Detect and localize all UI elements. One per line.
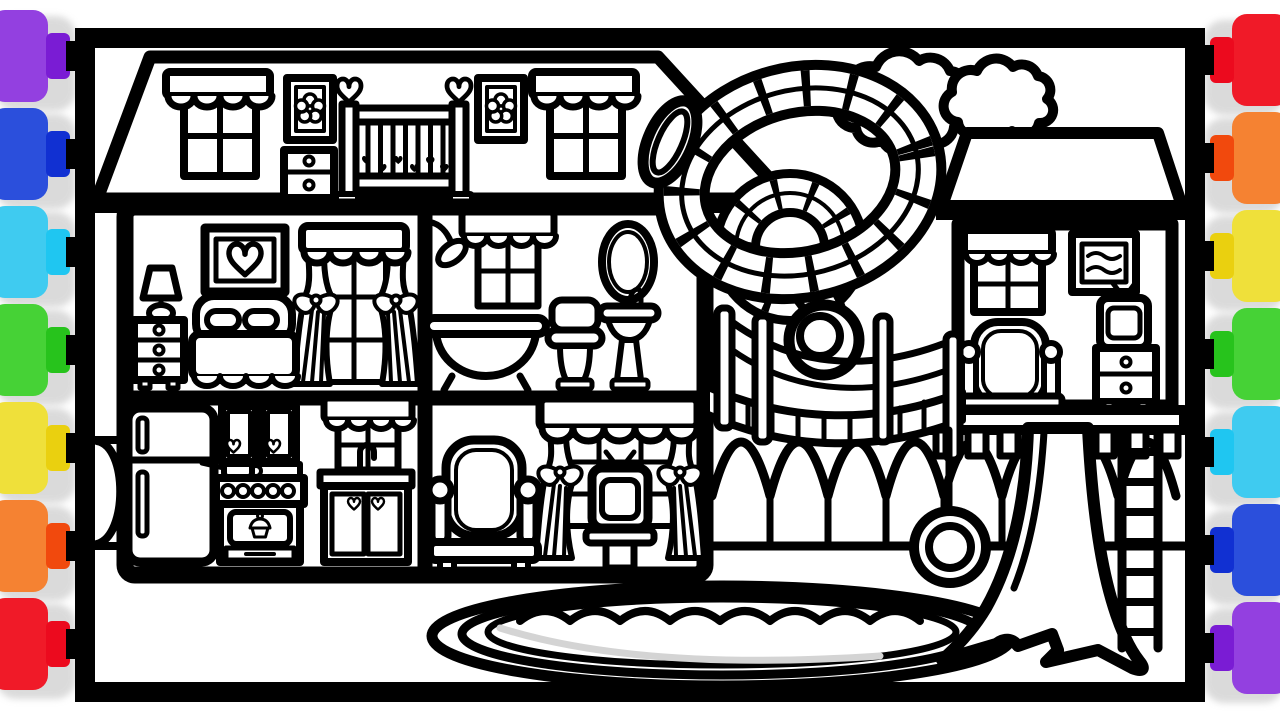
pedestal-foot [612, 380, 648, 389]
treehouse-window [964, 230, 1054, 312]
awning [324, 398, 412, 420]
flower-picture-frame [478, 78, 524, 140]
tub-rim [426, 318, 546, 334]
bedroom-window [294, 226, 418, 384]
valance [540, 398, 698, 428]
coloring-page-canvas [0, 0, 1280, 720]
chair-arm-cap [1042, 343, 1060, 361]
burner-knob [237, 485, 249, 497]
marker-barrel [0, 304, 48, 396]
marker-barrel [0, 598, 48, 690]
nightstand [284, 150, 334, 198]
marker-barrel [0, 500, 48, 592]
pool-water-wave [520, 611, 920, 621]
awning [166, 72, 270, 96]
marker-barrel [0, 108, 48, 200]
chair-arm-cap [517, 479, 539, 501]
attic-window-right [532, 72, 638, 176]
lamp-shade [143, 268, 179, 298]
fridge-handle [138, 418, 147, 452]
pillow [207, 311, 239, 329]
crib-post [342, 104, 356, 196]
chair-foot [514, 560, 528, 570]
toilet-base [558, 380, 592, 389]
valance-scallops [542, 428, 697, 441]
toilet-tank [552, 300, 598, 330]
marker-barrel [0, 402, 48, 494]
marker-barrel [1232, 504, 1280, 596]
tv-screen [602, 480, 638, 518]
sink-unit [320, 398, 414, 562]
burner-knob [267, 485, 279, 497]
burner-knob [222, 485, 234, 497]
kitchen [128, 398, 414, 562]
stove [202, 463, 304, 562]
marker-barrel [0, 10, 48, 102]
pillow [245, 311, 277, 329]
burner-knob [252, 485, 264, 497]
wavy-picture-frame [1072, 234, 1136, 292]
tv-stand-leg [606, 543, 634, 568]
dresser-foot [168, 380, 178, 388]
crib-bars [368, 120, 443, 178]
tv-screen [1108, 308, 1140, 338]
crib-top-rail [356, 108, 452, 122]
armchair [429, 440, 539, 570]
refrigerator [128, 408, 214, 562]
dresser-foot [140, 380, 150, 388]
coloring-page [0, 0, 1280, 720]
flower-picture-frame [287, 78, 333, 140]
treehouse-tv [1096, 282, 1156, 409]
scene [95, 51, 1188, 686]
bridge-post [755, 316, 770, 442]
toilet-bowl [560, 346, 590, 380]
tire-inner [929, 526, 971, 568]
upper-cabinet [262, 406, 296, 462]
treehouse-armchair [958, 322, 1062, 408]
fridge-handle [138, 472, 147, 536]
bridge-post [876, 316, 890, 442]
heart-picture [205, 228, 285, 292]
marker-barrel [0, 206, 48, 298]
attic-window-left [166, 72, 272, 176]
crib-post [452, 104, 466, 196]
awning [462, 212, 554, 236]
upper-cabinet [222, 406, 256, 462]
marker-barrel [1232, 112, 1280, 204]
awning [532, 72, 636, 96]
marker-barrel [1232, 308, 1280, 400]
crib-bottom-rail [356, 176, 452, 190]
valance [302, 226, 406, 252]
pedestal [617, 340, 641, 380]
bridge-post [717, 308, 732, 428]
marker-barrel [1232, 210, 1280, 302]
swimming-pool [432, 586, 1012, 686]
tree [914, 428, 1158, 670]
bed [192, 296, 298, 386]
treehouse-roof [942, 133, 1182, 206]
chair-foot [440, 560, 454, 570]
awning [964, 230, 1052, 254]
marker-barrel [1232, 14, 1280, 106]
burner-knob [282, 485, 294, 497]
marker-barrel [1232, 602, 1280, 694]
chair-arm-cap [429, 479, 451, 501]
blanket [192, 334, 296, 378]
marker-barrel [1232, 406, 1280, 498]
